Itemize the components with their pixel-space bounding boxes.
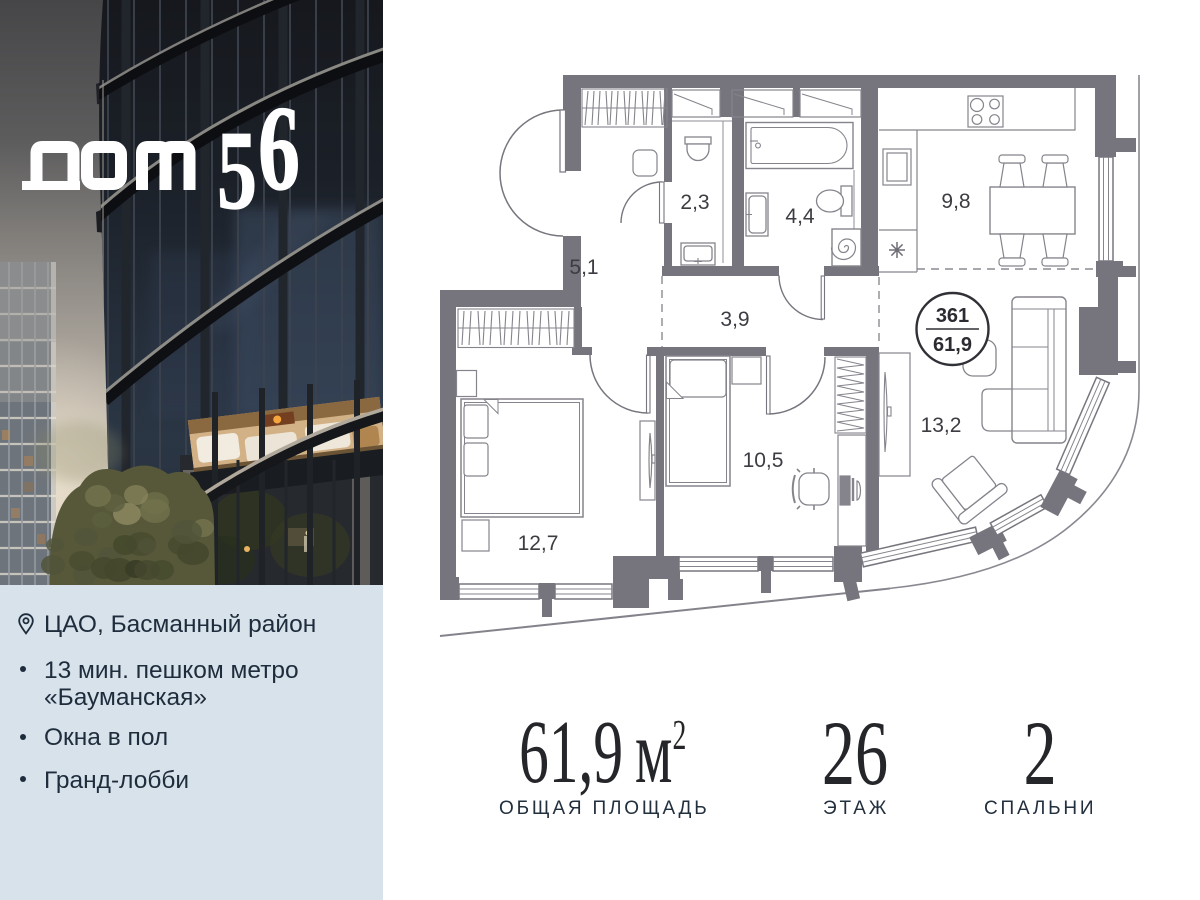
svg-text:12,7: 12,7 (518, 532, 559, 555)
svg-text:4,4: 4,4 (785, 205, 815, 228)
svg-text:361: 361 (936, 305, 969, 327)
svg-text:3,9: 3,9 (720, 308, 749, 331)
svg-text:5,1: 5,1 (569, 256, 598, 279)
svg-text:10,5: 10,5 (743, 449, 784, 472)
svg-text:2,3: 2,3 (680, 191, 709, 214)
svg-text:9,8: 9,8 (941, 190, 970, 213)
svg-text:61,9: 61,9 (933, 334, 972, 356)
svg-text:13,2: 13,2 (921, 414, 962, 437)
